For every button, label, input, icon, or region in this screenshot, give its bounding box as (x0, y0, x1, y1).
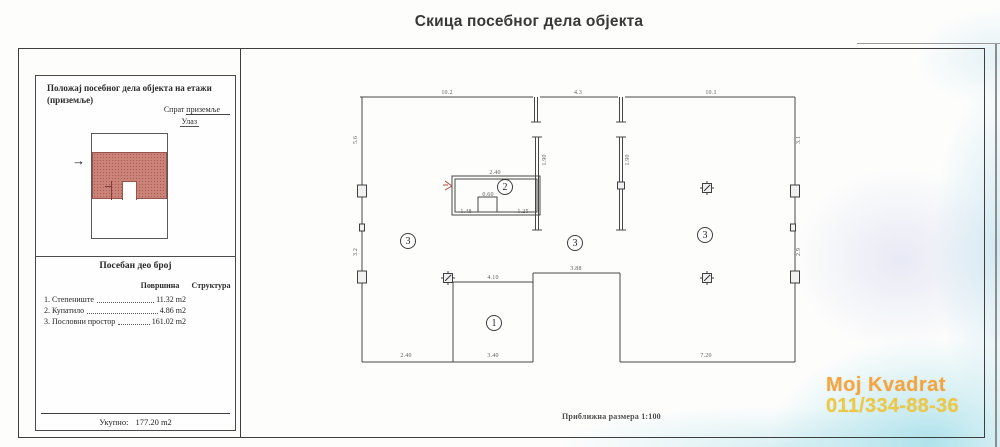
total-row: Укупно:177.20 m2 (36, 417, 235, 427)
dimension-label: 3.88 (570, 266, 581, 272)
page-title: Скица посебног дела објекта (0, 13, 1000, 31)
column-symbol (441, 271, 455, 285)
highlight-detail-line (111, 181, 112, 200)
leader-dots (87, 313, 158, 314)
dimension-label: 10.2 (441, 90, 452, 96)
location-heading: Положај посебног дела објекта на етажи (… (47, 83, 229, 106)
room-number-marker: 3 (697, 227, 713, 243)
room-number-marker: 2 (497, 179, 513, 195)
scan-edge-line-vertical (995, 43, 997, 447)
highlighted-unit-area (92, 152, 167, 199)
wall-pilaster (791, 271, 800, 283)
column-symbol (700, 181, 714, 195)
dimension-label: 2.40 (489, 170, 500, 176)
room-number-marker: 3 (567, 235, 583, 251)
legend-item: 3. Пословни простор161.02 m2 (44, 315, 186, 326)
total-label: Укупно: (99, 417, 128, 427)
floor-label: Спрат (164, 105, 184, 114)
dimension-label: 1.90 (542, 154, 548, 165)
door-mark-red (443, 181, 452, 190)
dimension-label: 10.1 (705, 90, 716, 96)
dimension-label: 2.40 (400, 353, 411, 359)
floor-plan-drawing (240, 48, 985, 438)
total-divider-line (41, 413, 230, 414)
legend-heading: Посебан део број (36, 261, 235, 271)
dimension-label: 7.20 (700, 353, 711, 359)
dimension-label: 3.40 (487, 353, 498, 359)
dimension-label: 4.3 (574, 90, 582, 96)
wall-stub-a (531, 97, 541, 122)
wall-pilaster (358, 271, 367, 283)
dimension-label: 5.6 (353, 136, 359, 144)
column-symbol (700, 271, 714, 285)
info-panel: Положај посебног дела објекта на етажи (… (35, 75, 236, 431)
dimension-label: 3.2 (353, 248, 359, 256)
legend-item-name: 1. Степениште (44, 295, 94, 304)
site-plan-thumbnail (91, 133, 168, 239)
column-header-structure: Структура (183, 281, 239, 290)
scale-note: Приближна размера 1:100 (562, 412, 661, 421)
room-number-marker: 1 (486, 315, 502, 331)
room-number-marker: 3 (400, 233, 416, 249)
legend-item-area: 11.32 m2 (156, 295, 186, 304)
leader-dots (118, 324, 149, 325)
dimension-label: 2.9 (796, 248, 802, 256)
wall-pilaster (358, 185, 367, 197)
floor-value: приземље (186, 105, 230, 115)
total-value: 177.20 m2 (135, 417, 171, 427)
legend-item-area: 4.86 m2 (160, 306, 186, 315)
wall-tick (791, 224, 796, 231)
plan-outline (360, 97, 795, 362)
column-header-area: Површина (129, 281, 191, 290)
legend-item-area: 161.02 m2 (152, 317, 186, 326)
leader-dots (97, 302, 154, 303)
location-arrow-icon: → (72, 153, 85, 169)
highlight-notch (122, 181, 137, 200)
legend-item-name: 3. Пословни простор (44, 317, 115, 326)
dimension-label: 1.48 (460, 209, 471, 215)
wall-tick (618, 182, 625, 189)
dimension-label: 3.1 (796, 136, 802, 144)
dimension-label: 4.10 (487, 275, 498, 281)
scan-edge-line-horizontal (857, 43, 1000, 44)
legend-item: 1. Степениште11.32 m2 (44, 293, 186, 304)
wall-stub-b (616, 97, 626, 122)
wall-pilaster (791, 185, 800, 197)
dimension-label: 1.90 (625, 154, 631, 165)
wall-tick (360, 224, 365, 231)
panel-section-divider (36, 256, 235, 257)
legend-item: 2. Купатило4.86 m2 (44, 304, 186, 315)
highlight-detail-line (105, 186, 112, 187)
dimension-label: 1.25 (517, 209, 528, 215)
entrance-label: Улаз (180, 117, 199, 127)
dimension-label: 0.60 (482, 192, 493, 198)
floor-line: Спрат приземље (164, 105, 230, 114)
legend-item-name: 2. Купатило (44, 306, 84, 315)
bathroom-shaft (478, 197, 497, 212)
scanned-document-page: Скица посебног дела објекта Положај посе… (0, 0, 1000, 447)
legend-rows: 1. Степениште11.32 m22. Купатило4.86 m23… (44, 293, 186, 326)
